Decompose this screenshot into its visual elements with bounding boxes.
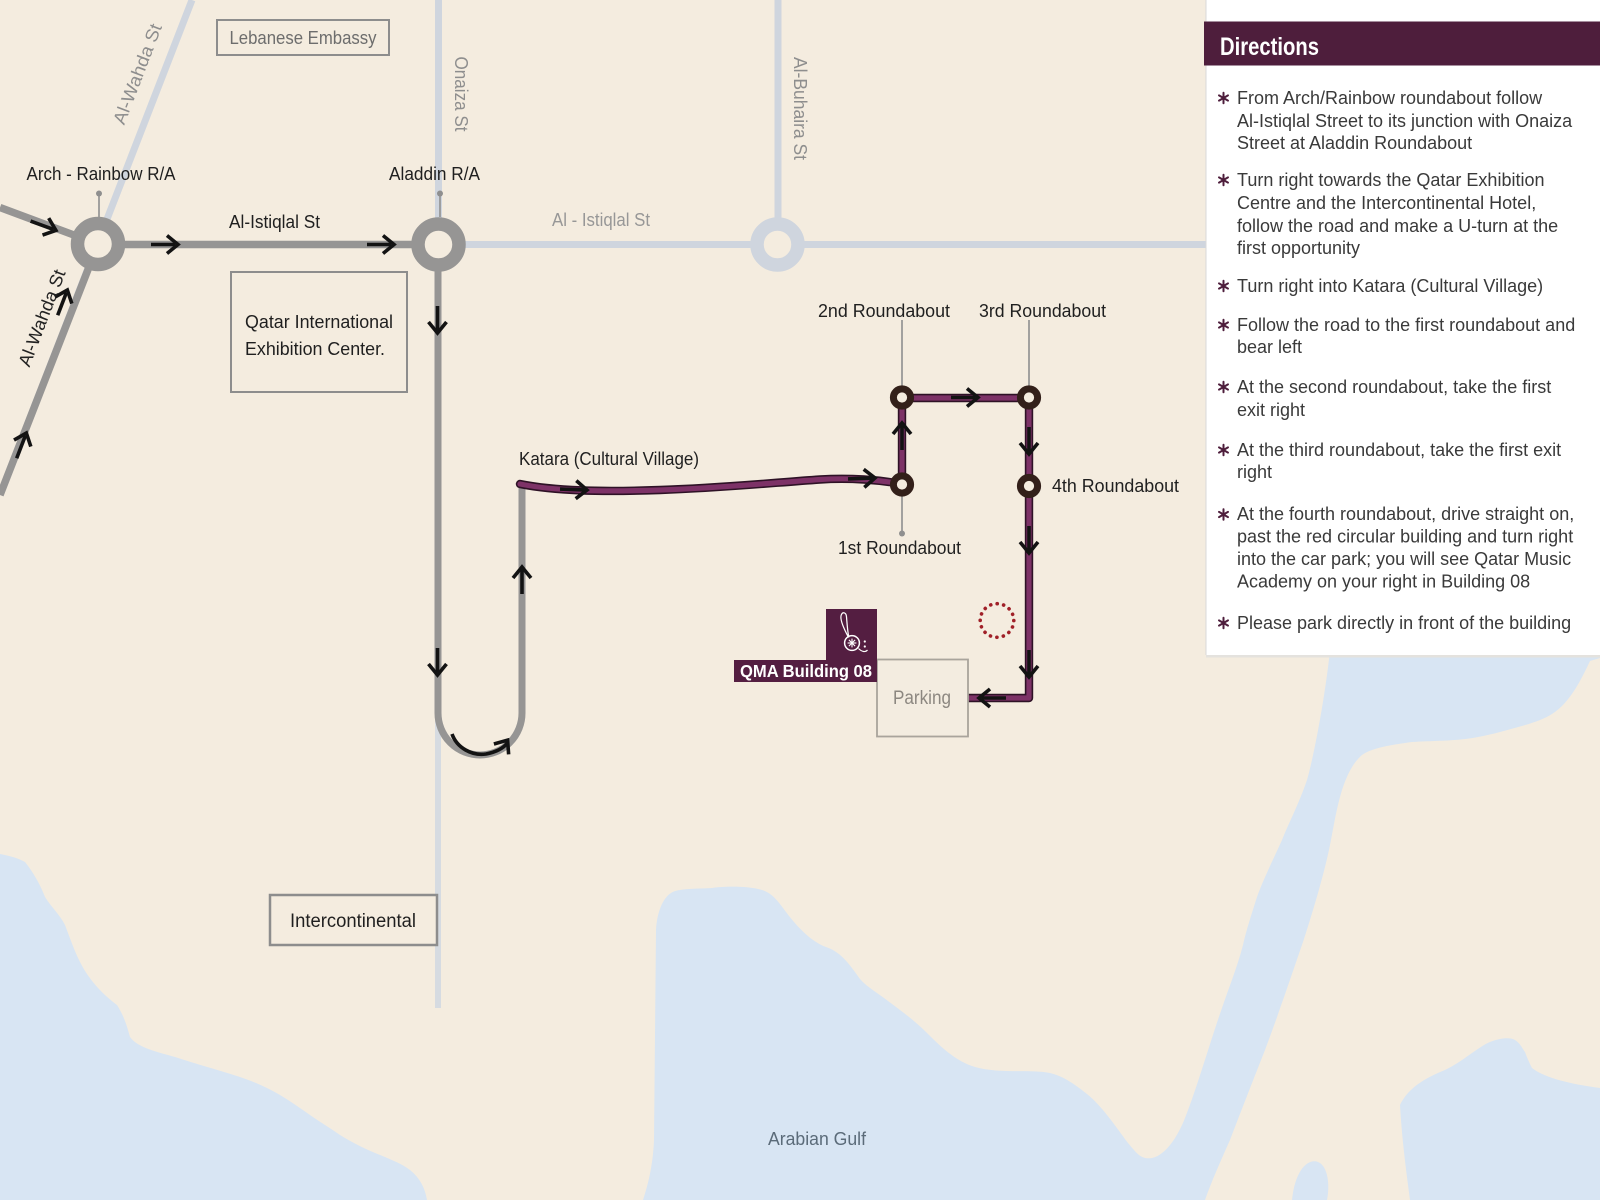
svg-text:Al-Istiqlal Street to its junc: Al-Istiqlal Street to its junction with … <box>1237 111 1573 131</box>
svg-text:Lebanese Embassy: Lebanese Embassy <box>230 28 377 48</box>
svg-text:QMA Building 08: QMA Building 08 <box>740 661 872 681</box>
svg-text:Qatar International: Qatar International <box>245 312 393 332</box>
svg-text:past the red circular building: past the red circular building and turn … <box>1237 527 1573 547</box>
svg-text:Parking: Parking <box>893 688 951 709</box>
svg-text:Intercontinental: Intercontinental <box>290 911 416 932</box>
svg-text:follow the road and make a U-t: follow the road and make a U-turn at the <box>1237 216 1558 236</box>
svg-text:Katara (Cultural Village): Katara (Cultural Village) <box>519 449 699 469</box>
svg-text:into the car park; you will se: into the car park; you will see Qatar Mu… <box>1237 549 1571 569</box>
svg-text:Centre and the Intercontinenta: Centre and the Intercontinental Hotel, <box>1237 193 1536 213</box>
svg-text:At the second roundabout, take: At the second roundabout, take the first <box>1237 377 1551 397</box>
svg-text:Follow the road to the first r: Follow the road to the first roundabout … <box>1237 315 1575 335</box>
svg-text:3rd Roundabout: 3rd Roundabout <box>979 301 1106 321</box>
svg-text:Al-Buhaira St: Al-Buhaira St <box>790 57 810 160</box>
svg-text:Turn right towards the Qatar E: Turn right towards the Qatar Exhibition <box>1237 170 1544 190</box>
svg-text:Please park directly in front: Please park directly in front of the bui… <box>1237 613 1571 633</box>
svg-text:first opportunity: first opportunity <box>1237 238 1360 258</box>
svg-text:Onaiza St: Onaiza St <box>451 57 471 132</box>
svg-text:2nd Roundabout: 2nd Roundabout <box>818 301 950 321</box>
svg-text:At the fourth roundabout, driv: At the fourth roundabout, drive straight… <box>1237 504 1574 524</box>
svg-text:Aladdin R/A: Aladdin R/A <box>389 164 480 184</box>
svg-text:Academy on your right in Build: Academy on your right in Building 08 <box>1237 572 1530 592</box>
svg-text:Arabian Gulf: Arabian Gulf <box>768 1129 867 1149</box>
svg-text:bear left: bear left <box>1237 337 1302 357</box>
svg-text:exit right: exit right <box>1237 400 1305 420</box>
svg-text:1st Roundabout: 1st Roundabout <box>838 538 961 558</box>
svg-text:Al-Istiqlal St: Al-Istiqlal St <box>229 212 320 232</box>
svg-text:From Arch/Rainbow roundabout f: From Arch/Rainbow roundabout follow <box>1237 88 1543 108</box>
svg-text:4th Roundabout: 4th Roundabout <box>1052 476 1179 496</box>
svg-text:right: right <box>1237 462 1272 482</box>
svg-text:Arch - Rainbow R/A: Arch - Rainbow R/A <box>27 164 176 184</box>
svg-text:Exhibition Center.: Exhibition Center. <box>245 339 385 359</box>
svg-text:Street at Aladdin Roundabout: Street at Aladdin Roundabout <box>1237 133 1472 153</box>
svg-text:Al - Istiqlal St: Al - Istiqlal St <box>552 210 650 230</box>
svg-text:Turn right into Katara (Cultur: Turn right into Katara (Cultural Village… <box>1237 276 1543 296</box>
svg-text:Directions: Directions <box>1220 33 1319 61</box>
svg-text:At the third roundabout, take: At the third roundabout, take the first … <box>1237 440 1561 460</box>
